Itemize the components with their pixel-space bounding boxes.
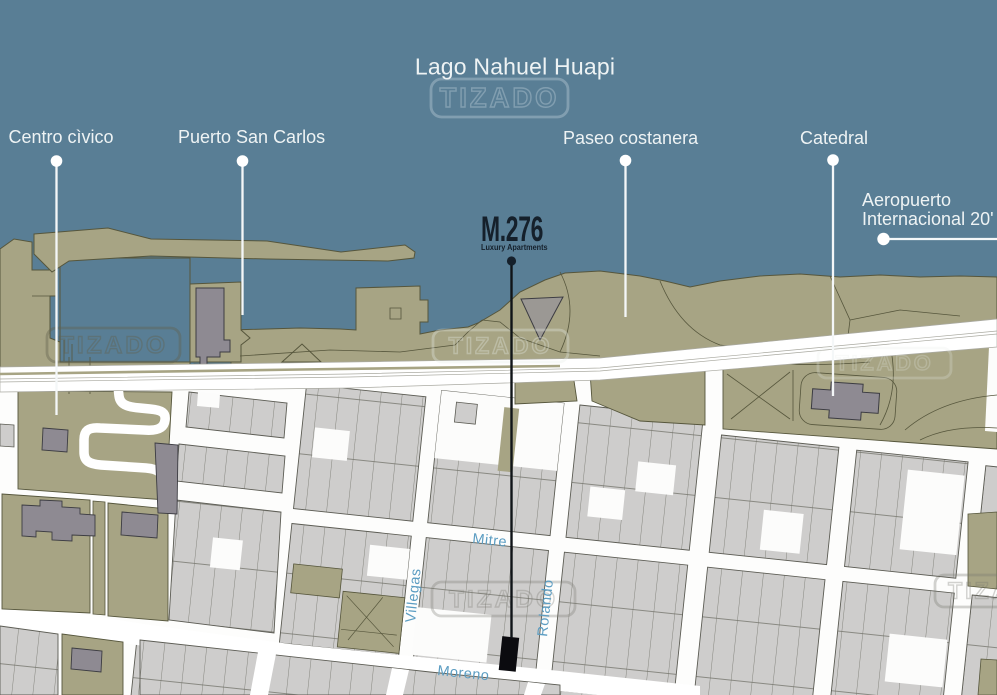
svg-text:TIZADO: TIZADO bbox=[835, 350, 933, 375]
svg-text:Luxury Apartments: Luxury Apartments bbox=[481, 243, 548, 253]
svg-text:Aeropuerto: Aeropuerto bbox=[862, 190, 951, 210]
svg-text:Lago Nahuel Huapi: Lago Nahuel Huapi bbox=[415, 54, 615, 80]
svg-text:Internacional 20': Internacional 20' bbox=[862, 209, 994, 229]
svg-text:Paseo costanera: Paseo costanera bbox=[563, 128, 699, 148]
svg-text:TIZADO: TIZADO bbox=[948, 578, 997, 604]
svg-text:Catedral: Catedral bbox=[800, 128, 868, 148]
svg-text:Centro cìvico: Centro cìvico bbox=[9, 127, 114, 147]
svg-text:TIZADO: TIZADO bbox=[440, 82, 560, 113]
svg-text:Puerto San Carlos: Puerto San Carlos bbox=[178, 127, 325, 147]
svg-text:TIZADO: TIZADO bbox=[449, 333, 553, 359]
svg-text:TIZADO: TIZADO bbox=[59, 332, 168, 359]
